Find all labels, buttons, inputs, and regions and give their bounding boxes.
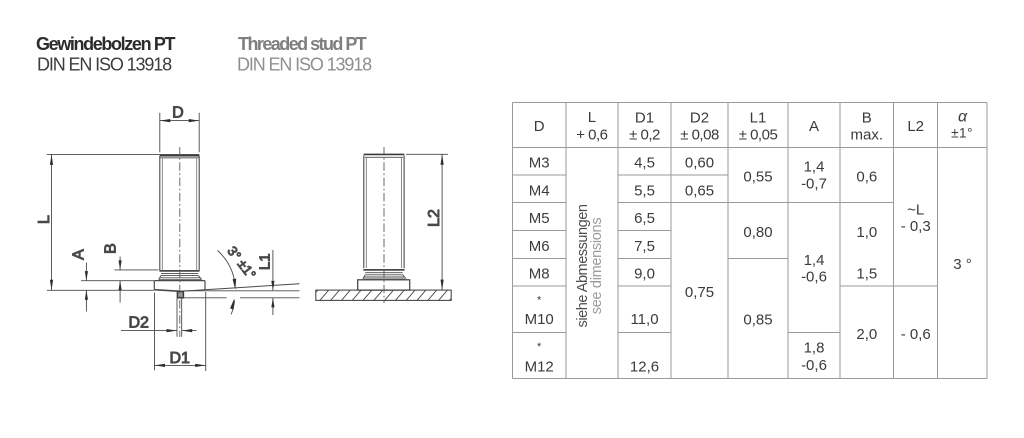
svg-text:3° ±1°: 3° ±1° — [224, 244, 259, 282]
svg-text:-0,6: -0,6 — [801, 269, 827, 286]
svg-text:D2: D2 — [128, 315, 149, 332]
svg-text:L1: L1 — [257, 253, 274, 270]
svg-text:- 0,3: - 0,3 — [901, 218, 931, 235]
svg-text:-0,6: -0,6 — [801, 357, 827, 374]
svg-text:M6: M6 — [529, 238, 550, 255]
svg-text:0,55: 0,55 — [743, 168, 772, 185]
svg-text:D: D — [172, 105, 184, 122]
svg-text:1,0: 1,0 — [856, 224, 877, 241]
svg-text:*: * — [537, 341, 542, 353]
svg-text:L2: L2 — [426, 209, 443, 227]
svg-text:1,4: 1,4 — [804, 252, 825, 269]
svg-text:± 0,05: ± 0,05 — [739, 127, 778, 144]
svg-text:1,8: 1,8 — [804, 340, 825, 357]
svg-text:Threaded stud PT: Threaded stud PT — [238, 34, 367, 54]
svg-text:6,5: 6,5 — [634, 210, 655, 227]
svg-text:± 0,08: ± 0,08 — [680, 127, 719, 144]
svg-text:9,0: 9,0 — [634, 266, 655, 283]
svg-text:D: D — [534, 118, 545, 135]
svg-text:D1: D1 — [169, 350, 190, 367]
svg-text:± 0,2: ± 0,2 — [629, 127, 660, 144]
svg-text:1,5: 1,5 — [856, 266, 877, 283]
svg-text:M8: M8 — [529, 266, 550, 283]
svg-text:5,5: 5,5 — [634, 182, 655, 199]
svg-text:D1: D1 — [635, 109, 654, 126]
svg-text:~L: ~L — [907, 201, 924, 218]
svg-text:0,60: 0,60 — [685, 155, 714, 172]
svg-text:M3: M3 — [529, 155, 550, 172]
svg-text:12,6: 12,6 — [630, 358, 659, 375]
svg-text:- 0,6: - 0,6 — [901, 326, 931, 343]
svg-text:L: L — [588, 109, 596, 126]
svg-text:L2: L2 — [907, 118, 924, 135]
svg-text:+ 0,6: + 0,6 — [576, 127, 607, 144]
svg-text:7,5: 7,5 — [634, 238, 655, 255]
svg-text:M4: M4 — [529, 182, 550, 199]
svg-text:B: B — [862, 109, 872, 126]
svg-text:A: A — [809, 118, 819, 135]
svg-text:D2: D2 — [690, 109, 709, 126]
svg-text:L: L — [36, 215, 53, 224]
svg-text:max.: max. — [851, 127, 884, 144]
svg-text:2,0: 2,0 — [856, 326, 877, 343]
svg-text:± 1 °: ± 1 ° — [951, 126, 972, 141]
svg-text:*: * — [537, 295, 542, 307]
svg-text:DIN EN ISO 13918: DIN EN ISO 13918 — [37, 55, 172, 75]
svg-text:1,4: 1,4 — [804, 159, 825, 176]
svg-text:-0,7: -0,7 — [801, 176, 827, 193]
svg-text:DIN EN ISO 13918: DIN EN ISO 13918 — [237, 55, 372, 75]
svg-text:3 °: 3 ° — [953, 256, 972, 273]
svg-text:α: α — [958, 109, 968, 126]
svg-text:A: A — [71, 249, 88, 260]
svg-text:Gewindebolzen PT: Gewindebolzen PT — [36, 34, 175, 54]
svg-text:0,65: 0,65 — [685, 182, 714, 199]
svg-text:0,85: 0,85 — [743, 312, 772, 329]
svg-text:11,0: 11,0 — [630, 311, 658, 328]
svg-text:4,5: 4,5 — [634, 155, 655, 172]
svg-text:M12: M12 — [525, 358, 554, 375]
svg-text:see dimensions: see dimensions — [589, 218, 605, 315]
svg-text:M10: M10 — [525, 311, 554, 328]
svg-text:B: B — [102, 243, 119, 254]
svg-text:0,80: 0,80 — [743, 224, 772, 241]
svg-text:0,75: 0,75 — [685, 284, 714, 301]
svg-text:M5: M5 — [529, 210, 550, 227]
svg-text:L1: L1 — [750, 109, 767, 126]
svg-text:0,6: 0,6 — [856, 168, 877, 185]
